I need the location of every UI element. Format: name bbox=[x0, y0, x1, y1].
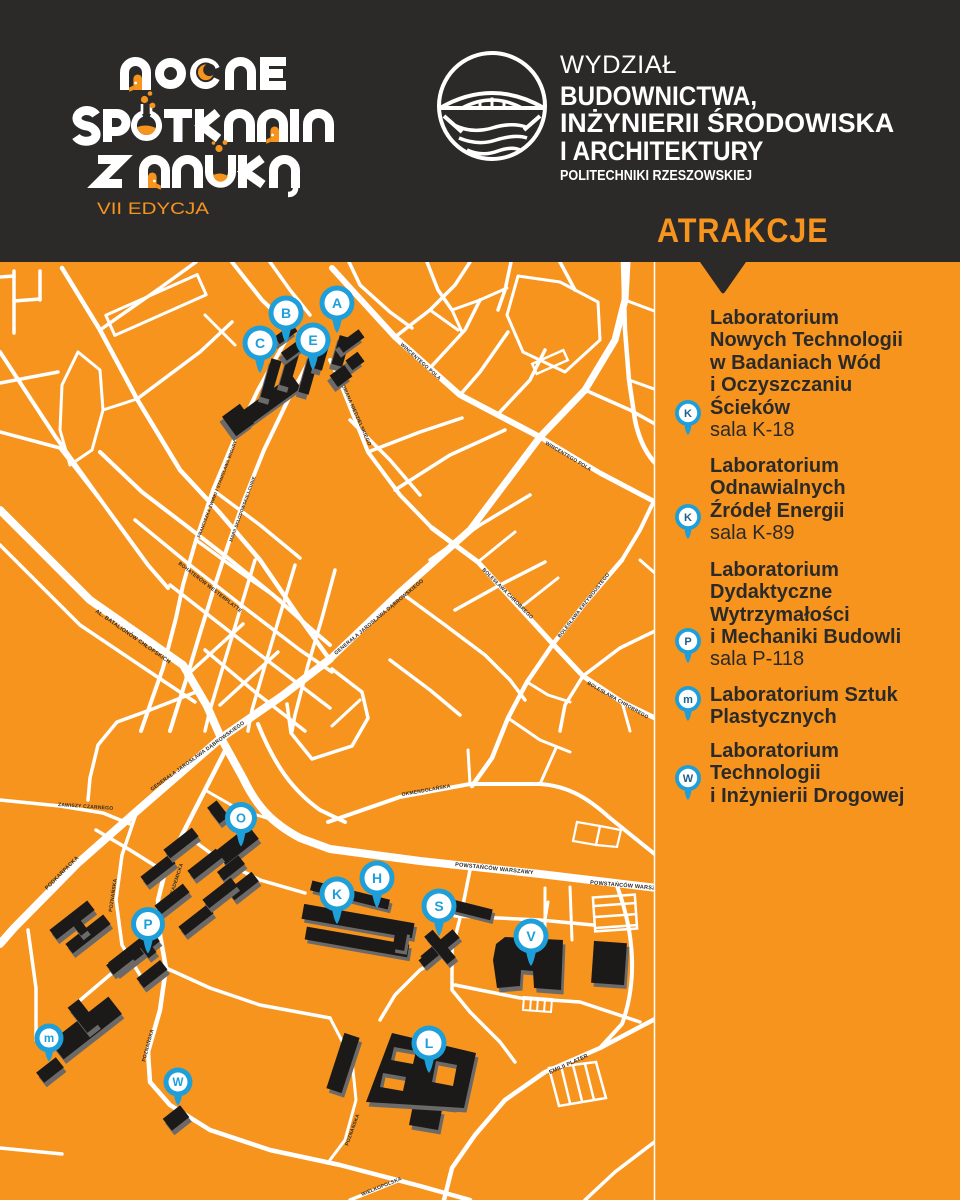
svg-text:L: L bbox=[425, 1035, 434, 1051]
svg-text:V: V bbox=[526, 928, 536, 944]
svg-text:P: P bbox=[684, 636, 691, 648]
svg-text:P: P bbox=[143, 917, 152, 932]
svg-text:H: H bbox=[372, 870, 382, 886]
svg-text:K: K bbox=[684, 408, 692, 420]
svg-text:m: m bbox=[44, 1032, 54, 1045]
svg-text:K: K bbox=[684, 512, 692, 524]
svg-text:E: E bbox=[308, 332, 317, 348]
svg-text:W: W bbox=[173, 1076, 184, 1089]
svg-text:K: K bbox=[332, 886, 342, 902]
svg-text:C: C bbox=[255, 335, 265, 351]
svg-text:A: A bbox=[332, 295, 342, 311]
svg-text:B: B bbox=[281, 305, 291, 321]
svg-text:VII EDYCJA: VII EDYCJA bbox=[97, 199, 210, 218]
svg-text:O: O bbox=[236, 811, 246, 826]
svg-text:W: W bbox=[683, 773, 694, 785]
svg-text:S: S bbox=[434, 898, 443, 914]
svg-text:m: m bbox=[683, 694, 693, 706]
